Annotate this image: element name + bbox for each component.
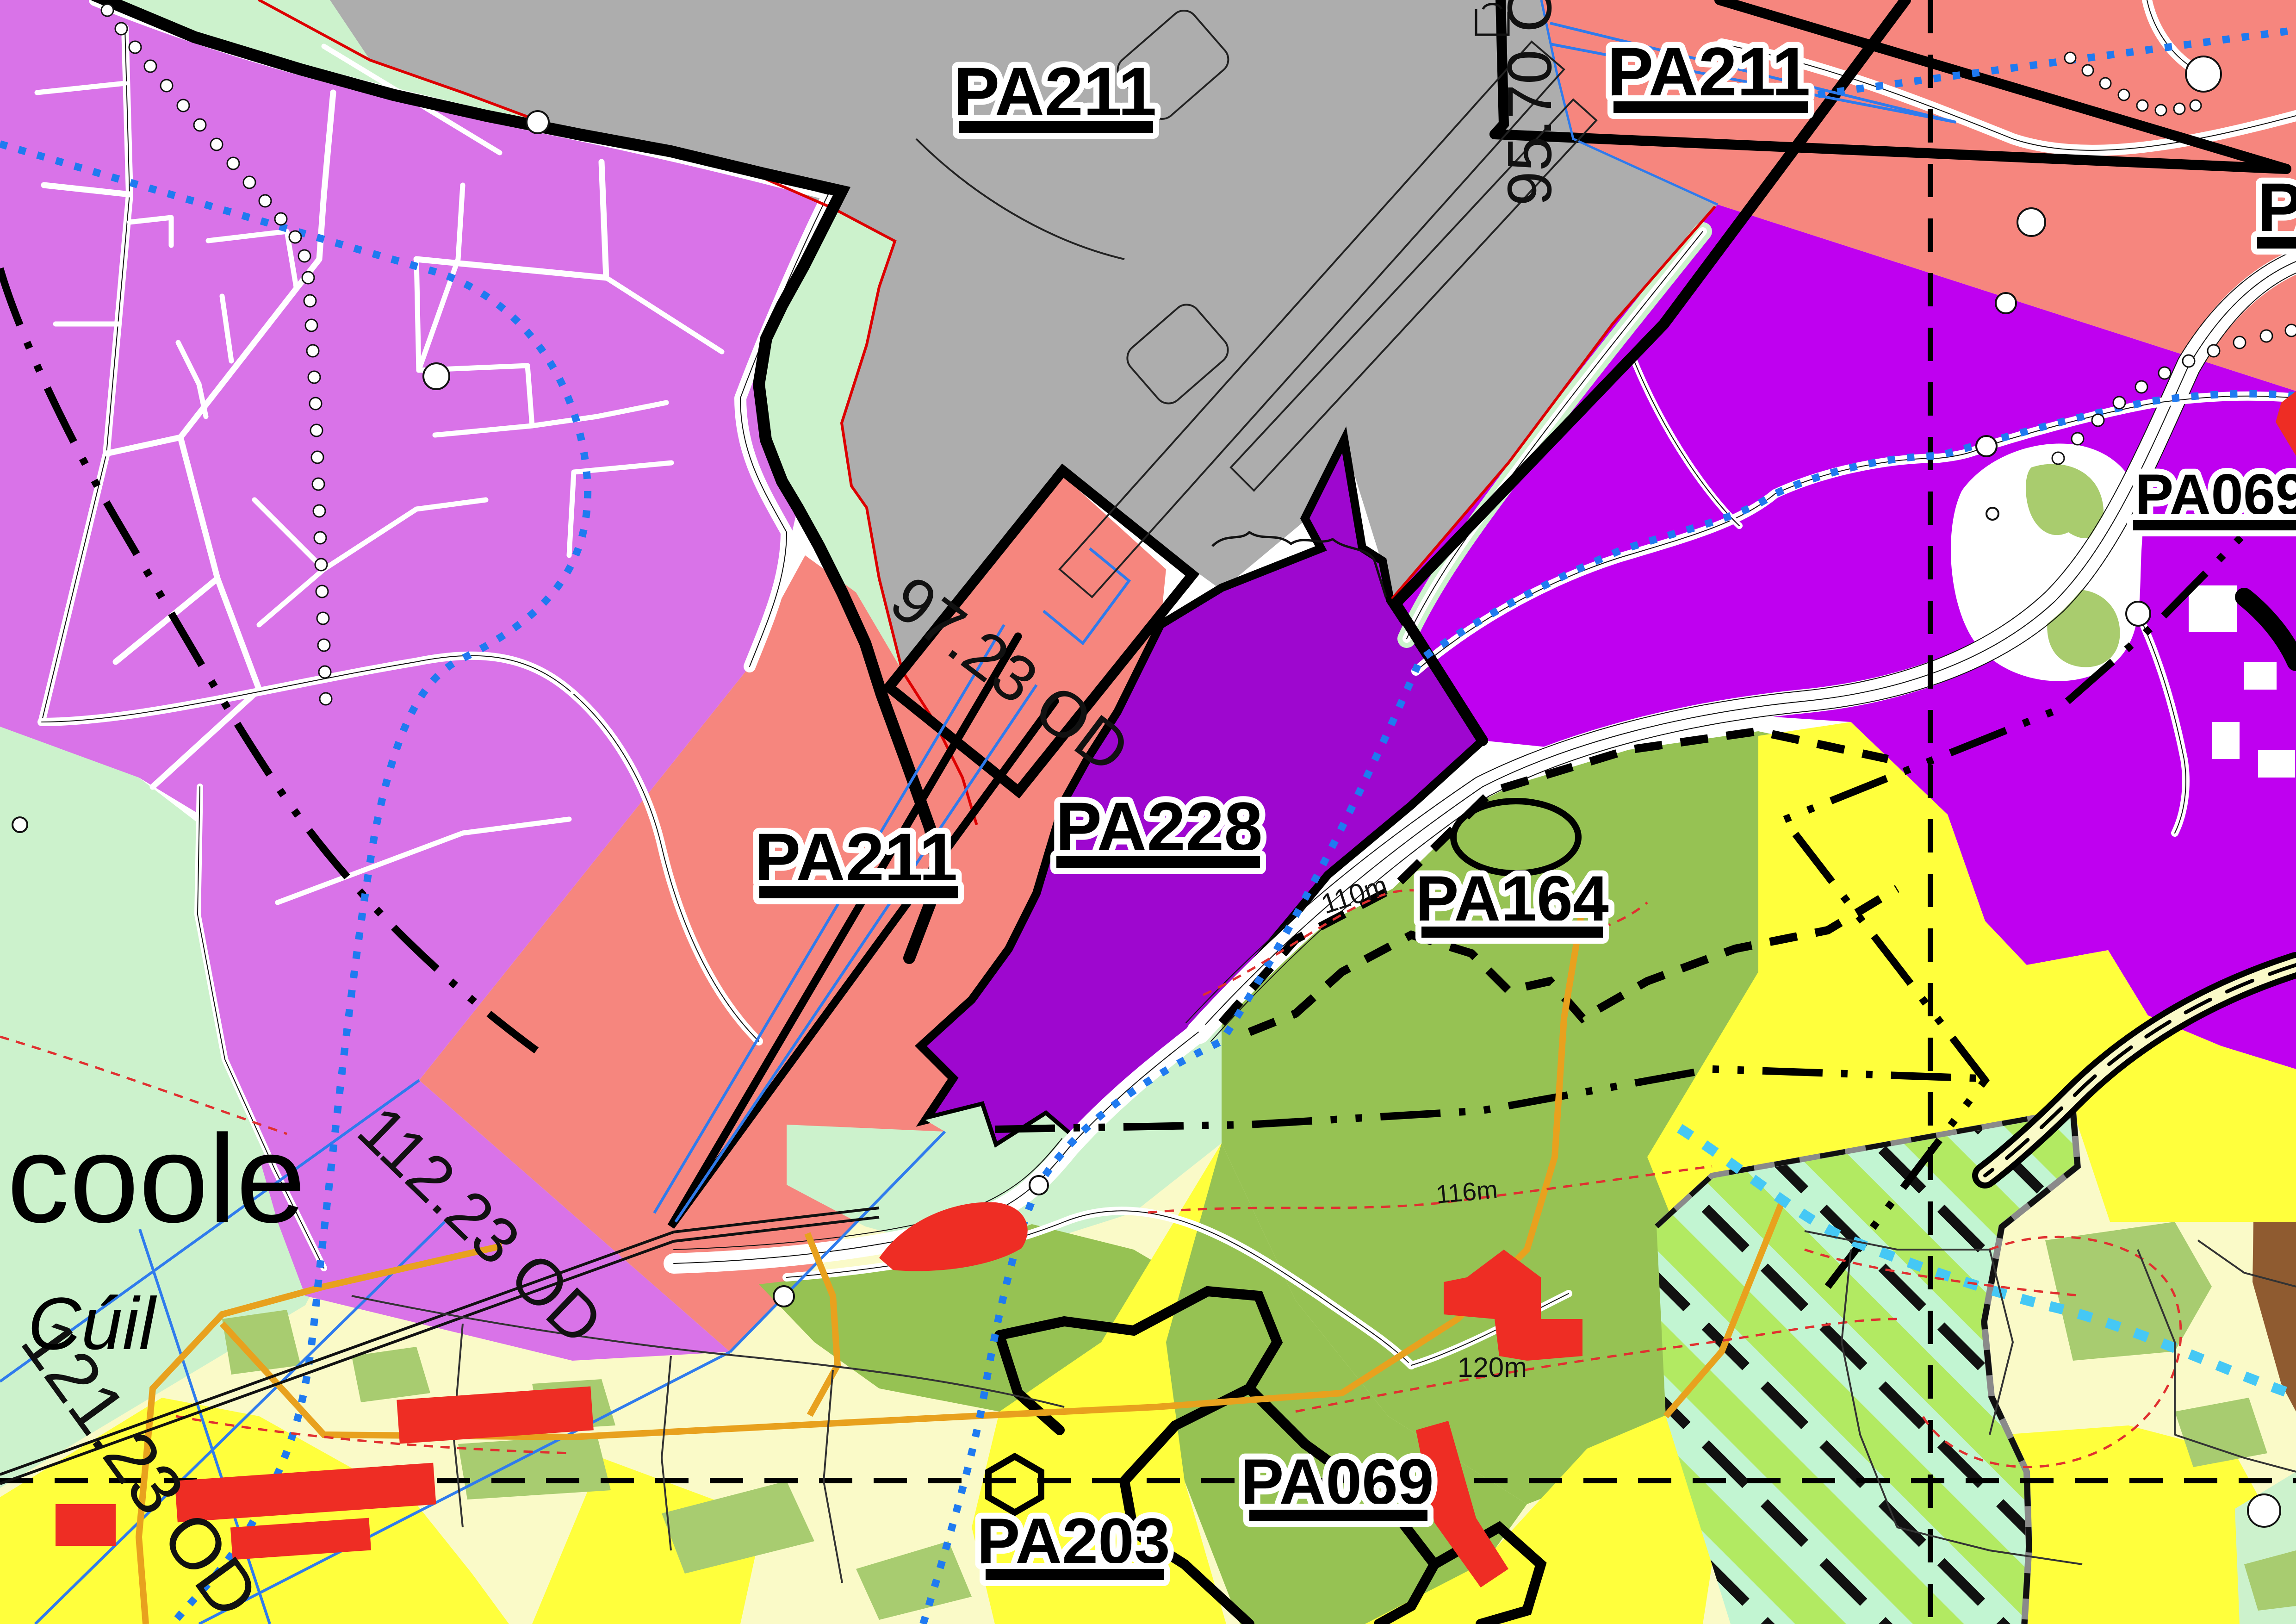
svg-text:coole: coole [7, 1109, 305, 1249]
svg-text:95.70 OD: 95.70 OD [1495, 0, 1564, 206]
svg-text:116m: 116m [1435, 1175, 1499, 1209]
svg-text:120m: 120m [1458, 1352, 1527, 1383]
svg-text:Cúil: Cúil [28, 1282, 157, 1365]
